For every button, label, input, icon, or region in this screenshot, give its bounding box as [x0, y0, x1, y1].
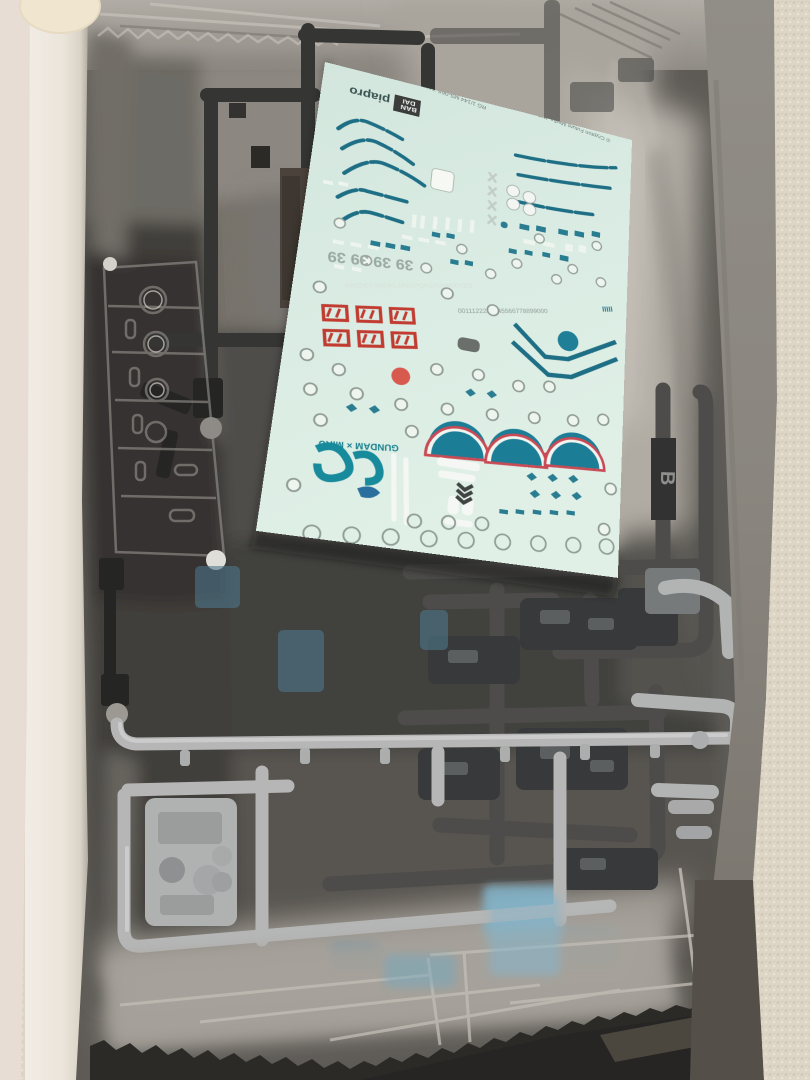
svg-text:ABCDEFGHIJKLMNOPQRSTUVWXY321: ABCDEFGHIJKLMNOPQRSTUVWXY321	[344, 283, 474, 290]
svg-text:IIIII: IIIII	[602, 305, 614, 313]
svg-text:0011122233445566778899000: 0011122233445566778899000	[458, 308, 549, 315]
